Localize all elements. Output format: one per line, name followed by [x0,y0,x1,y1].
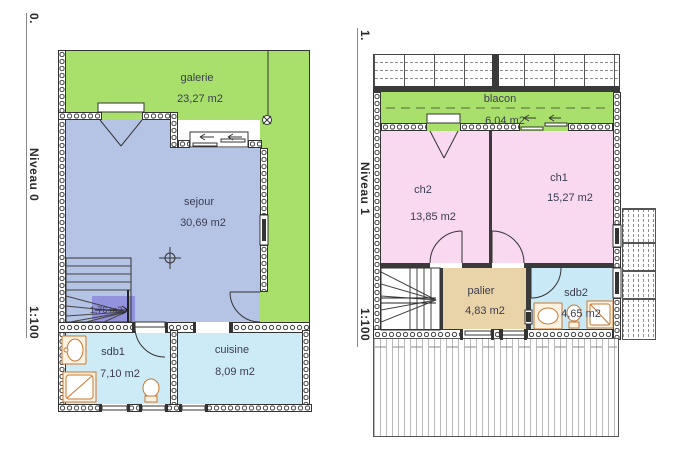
area-ch2: 13,85 m2 [410,211,456,223]
label-galerie: galerie [180,72,213,84]
ceiling-light-icon [159,247,181,269]
outlet-icon [263,50,272,125]
area-sejour: 30,69 m2 [180,217,226,229]
sliding-window-sejour-icon [190,132,248,147]
label-blacon: blacon [484,93,516,105]
plan-linework [0,0,700,455]
label-sdb2: sdb2 [564,287,588,299]
area-hall: 1,76 m2 [90,305,123,315]
area-blacon: 6,04 m2 [485,115,525,127]
door-ch1-icon [492,231,524,263]
label-palier: palier [468,285,495,297]
sink-sdb2-icon [534,303,562,329]
area-sdb2: 4,65 m2 [561,308,601,320]
area-cuisine: 8,09 m2 [215,366,255,378]
door-blacon-ch2-icon [427,114,460,158]
area-galerie: 23,27 m2 [177,93,223,105]
sink-sdb1-icon [62,336,86,364]
area-palier: 4,83 m2 [465,305,505,317]
label-ch1: ch1 [550,172,568,184]
floorplan-canvas: 0. Niveau 0 1:100 1. Niveau 1 1:100 [0,0,700,455]
label-sdb1: sdb1 [101,346,125,358]
label-sejour: sejour [184,196,214,208]
window-sejour-right-icon [260,215,268,245]
area-ch1: 15,27 m2 [547,192,593,204]
shower-sdb1-icon [63,372,96,402]
door-sejour-galerie-icon [230,292,260,322]
sliding-window-ch1-icon [521,115,567,130]
toilet-sdb1-icon [143,379,159,402]
door-ch2-icon [430,231,462,263]
label-cuisine: cuisine [215,344,249,356]
door-sdb2-icon [531,268,561,298]
window-sejour-top-icon [98,103,144,146]
label-ch2: ch2 [414,184,432,196]
windows-bottom-n1-icon [460,329,527,340]
windows-bottom-n0-icon [99,404,208,412]
area-sdb1: 7,10 m2 [100,368,140,380]
stairs-niveau1-icon [381,268,440,330]
